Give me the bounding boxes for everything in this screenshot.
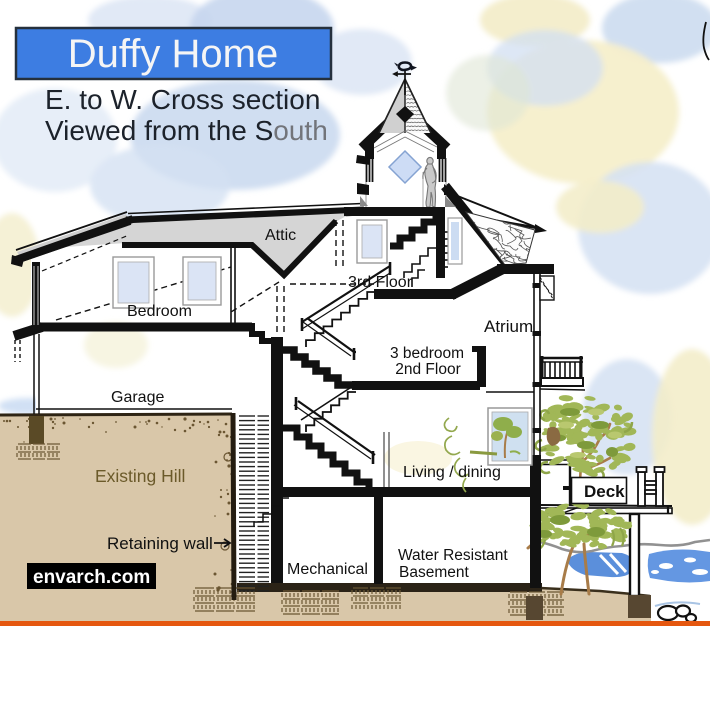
- svg-text:Basement: Basement: [399, 564, 469, 581]
- svg-text:Atrium: Atrium: [484, 317, 533, 336]
- svg-text:Water Resistant: Water Resistant: [398, 547, 508, 564]
- svg-text:Deck: Deck: [584, 482, 625, 501]
- svg-text:Mechanical: Mechanical: [287, 561, 368, 578]
- svg-text:Bedroom: Bedroom: [127, 303, 192, 320]
- svg-text:Garage: Garage: [111, 389, 164, 406]
- svg-text:Duffy Home: Duffy Home: [68, 32, 278, 76]
- svg-text:Existing Hill: Existing Hill: [95, 466, 185, 486]
- svg-text:Viewed from the South: Viewed from the South: [45, 115, 328, 146]
- svg-text:Retaining wall: Retaining wall: [107, 534, 213, 553]
- svg-text:envarch.com: envarch.com: [33, 567, 150, 588]
- svg-text:Living / dining: Living / dining: [403, 464, 501, 481]
- svg-text:Attic: Attic: [265, 227, 296, 244]
- svg-text:3rd Floor: 3rd Floor: [348, 274, 413, 291]
- svg-text:E. to W. Cross section: E. to W. Cross section: [45, 84, 320, 115]
- svg-text:2nd Floor: 2nd Floor: [395, 361, 460, 378]
- svg-text:3 bedroom: 3 bedroom: [390, 345, 464, 362]
